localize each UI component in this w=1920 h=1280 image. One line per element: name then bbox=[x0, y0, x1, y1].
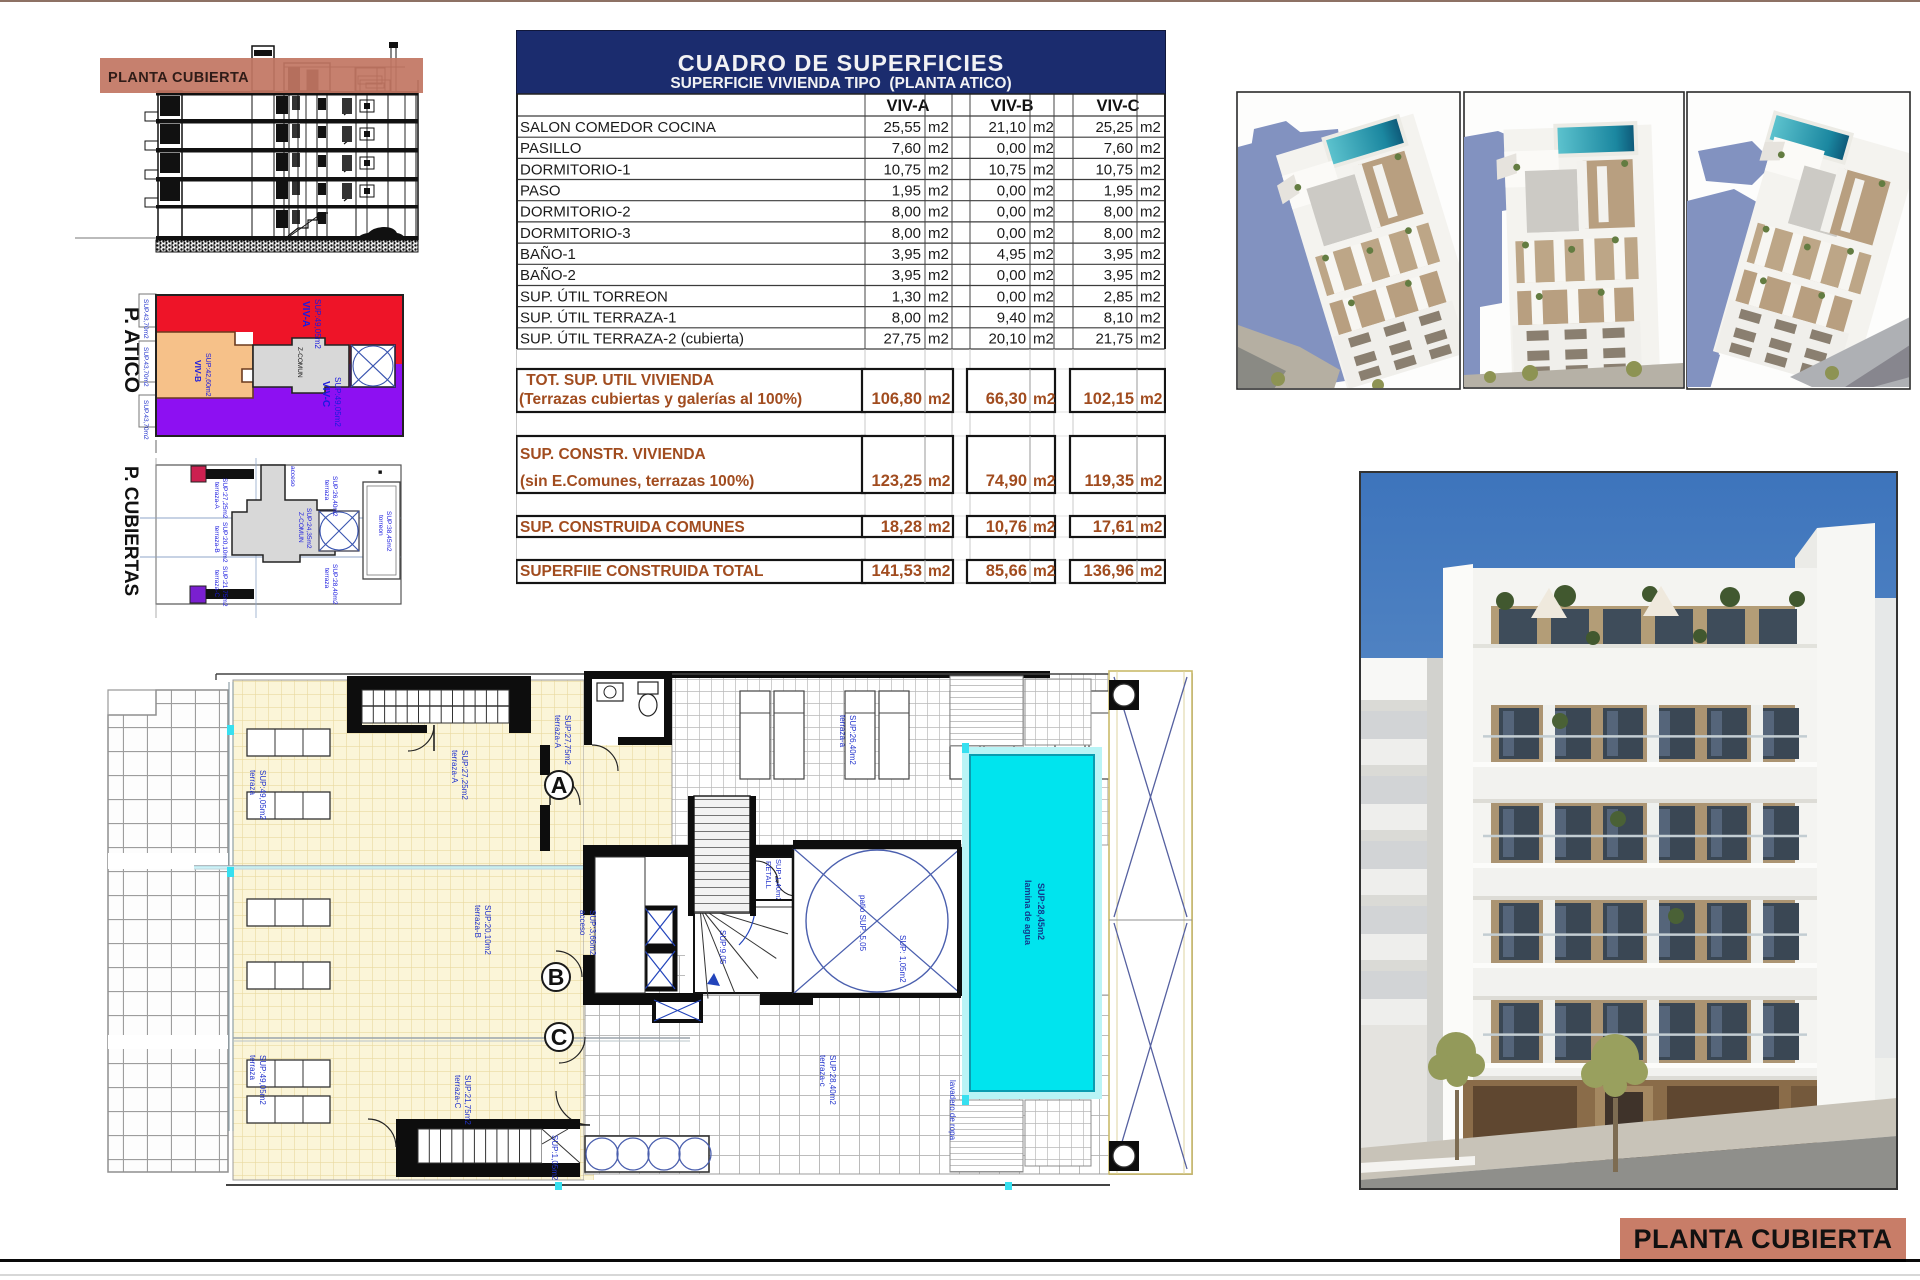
svg-text:DORMITORIO-1: DORMITORIO-1 bbox=[520, 161, 631, 178]
svg-text:VIV-A: VIV-A bbox=[300, 301, 311, 327]
svg-text:Z-COMUN: Z-COMUN bbox=[296, 347, 303, 378]
svg-text:SUP.43,70m2: SUP.43,70m2 bbox=[142, 400, 149, 440]
svg-text:PLANTA CUBIERTA: PLANTA CUBIERTA bbox=[108, 70, 249, 86]
svg-text:m2: m2 bbox=[1033, 182, 1054, 199]
svg-text:terraza-A: terraza-A bbox=[553, 715, 562, 749]
svg-text:0,00: 0,00 bbox=[997, 288, 1026, 305]
svg-text:m2: m2 bbox=[1140, 331, 1161, 348]
svg-text:terraza-B: terraza-B bbox=[473, 905, 482, 938]
svg-text:VIV-C: VIV-C bbox=[320, 381, 331, 407]
svg-text:3,95: 3,95 bbox=[892, 246, 921, 263]
svg-text:m2: m2 bbox=[1140, 225, 1161, 242]
svg-text:DORMITORIO-3: DORMITORIO-3 bbox=[520, 225, 631, 242]
svg-text:2,85: 2,85 bbox=[1104, 288, 1133, 305]
svg-text:SUP:1,40m2: SUP:1,40m2 bbox=[774, 859, 783, 902]
svg-text:m2: m2 bbox=[928, 161, 949, 178]
svg-text:SALON COMEDOR COCINA: SALON COMEDOR COCINA bbox=[520, 119, 716, 136]
svg-text:SUP:9,05: SUP:9,05 bbox=[718, 930, 727, 965]
svg-text:terraza-A: terraza-A bbox=[450, 750, 459, 784]
svg-text:m2: m2 bbox=[928, 246, 949, 263]
svg-text:m2: m2 bbox=[1033, 246, 1054, 263]
svg-text:m2: m2 bbox=[1140, 140, 1161, 157]
svg-text:PASO: PASO bbox=[520, 182, 561, 199]
svg-text:136,96: 136,96 bbox=[1084, 562, 1134, 580]
svg-text:terraza-A: terraza-A bbox=[213, 482, 220, 509]
svg-text:4,95: 4,95 bbox=[997, 246, 1026, 263]
svg-text:CUADRO DE SUPERFICIES: CUADRO DE SUPERFICIES bbox=[678, 50, 1005, 76]
svg-text:0,00: 0,00 bbox=[997, 225, 1026, 242]
svg-text:m2: m2 bbox=[1140, 473, 1162, 490]
svg-text:SUP:28,40m2: SUP:28,40m2 bbox=[331, 564, 338, 605]
svg-text:0,00: 0,00 bbox=[997, 267, 1026, 284]
svg-text:SUP:21,75m2: SUP:21,75m2 bbox=[463, 1075, 472, 1125]
svg-text:SUP:20,10m2: SUP:20,10m2 bbox=[221, 522, 228, 563]
svg-text:102,15: 102,15 bbox=[1084, 390, 1134, 408]
svg-text:m2: m2 bbox=[1140, 246, 1161, 263]
svg-text:0,00: 0,00 bbox=[997, 182, 1026, 199]
svg-text:m2: m2 bbox=[1140, 161, 1161, 178]
svg-text:m2: m2 bbox=[1033, 563, 1055, 580]
svg-text:SUP. ÚTIL TERRAZA-2 (cubierta): SUP. ÚTIL TERRAZA-2 (cubierta) bbox=[520, 331, 744, 348]
svg-text:SUP. ÚTIL TORREON: SUP. ÚTIL TORREON bbox=[520, 288, 668, 305]
svg-text:SUP:28,45m2: SUP:28,45m2 bbox=[1036, 883, 1046, 940]
svg-text:66,30: 66,30 bbox=[986, 390, 1027, 408]
svg-text:m2: m2 bbox=[928, 119, 949, 136]
svg-text:patio SUP: 5,05: patio SUP: 5,05 bbox=[858, 895, 867, 952]
svg-text:SUP:27,75m2: SUP:27,75m2 bbox=[563, 715, 572, 765]
svg-text:m2: m2 bbox=[928, 204, 949, 221]
svg-text:SUP.43,70m2: SUP.43,70m2 bbox=[142, 347, 149, 387]
svg-text:m2: m2 bbox=[1140, 563, 1162, 580]
svg-text:m2: m2 bbox=[928, 267, 949, 284]
svg-text:1,95: 1,95 bbox=[892, 182, 921, 199]
svg-text:SUP:20,10m2: SUP:20,10m2 bbox=[483, 905, 492, 955]
svg-text:m2: m2 bbox=[1140, 391, 1162, 408]
svg-text:m2: m2 bbox=[1140, 310, 1161, 327]
svg-text:8,00: 8,00 bbox=[892, 225, 921, 242]
svg-text:8,10: 8,10 bbox=[1104, 310, 1133, 327]
svg-text:m2: m2 bbox=[1140, 519, 1162, 536]
svg-text:SUP:27,25m2: SUP:27,25m2 bbox=[221, 478, 228, 519]
svg-text:141,53: 141,53 bbox=[872, 562, 922, 580]
svg-text:m2: m2 bbox=[928, 140, 949, 157]
svg-text:P. CUBIERTAS: P. CUBIERTAS bbox=[120, 466, 141, 596]
svg-text:m2: m2 bbox=[1033, 267, 1054, 284]
svg-text:m2: m2 bbox=[928, 225, 949, 242]
svg-text:m2: m2 bbox=[1140, 267, 1161, 284]
svg-text:SUP:24,35m2: SUP:24,35m2 bbox=[305, 508, 312, 549]
svg-text:27,75: 27,75 bbox=[883, 331, 921, 348]
svg-text:terraza: terraza bbox=[248, 770, 257, 795]
svg-text:m2: m2 bbox=[1033, 331, 1054, 348]
svg-text:m2: m2 bbox=[928, 473, 950, 490]
svg-text:10,75: 10,75 bbox=[883, 161, 921, 178]
svg-text:m2: m2 bbox=[1033, 519, 1055, 536]
svg-text:PASILLO: PASILLO bbox=[520, 140, 581, 157]
svg-text:m2: m2 bbox=[928, 310, 949, 327]
svg-text:SUP:26,40m2: SUP:26,40m2 bbox=[331, 476, 338, 517]
svg-text:m2: m2 bbox=[1140, 182, 1161, 199]
svg-text:VIV-C: VIV-C bbox=[1096, 97, 1139, 115]
svg-text:SUPERFICIE VIVIENDA TIPO (PLA: SUPERFICIE VIVIENDA TIPO (PLANTA ATICO) bbox=[670, 75, 1011, 92]
svg-text:terraza-C: terraza-C bbox=[453, 1075, 462, 1109]
svg-text:SUP:28,40m2: SUP:28,40m2 bbox=[828, 1055, 837, 1105]
svg-text:3,95: 3,95 bbox=[1104, 267, 1133, 284]
svg-text:A: A bbox=[551, 772, 568, 798]
svg-text:m2: m2 bbox=[928, 563, 950, 580]
svg-text:m2: m2 bbox=[1033, 140, 1054, 157]
svg-text:B: B bbox=[548, 964, 565, 990]
svg-text:74,90: 74,90 bbox=[986, 472, 1027, 490]
svg-text:SUPERFIIE CONSTRUIDA TOTAL: SUPERFIIE CONSTRUIDA TOTAL bbox=[520, 563, 763, 580]
svg-text:18,28: 18,28 bbox=[881, 518, 922, 536]
svg-text:m2: m2 bbox=[928, 391, 950, 408]
svg-text:TOT. SUP. UTIL VIVIENDA: TOT. SUP. UTIL VIVIENDA bbox=[522, 372, 714, 389]
svg-text:SUP:49,05m2: SUP:49,05m2 bbox=[258, 1055, 267, 1105]
svg-text:1,30: 1,30 bbox=[892, 288, 921, 305]
svg-text:SUP:38,45m2: SUP:38,45m2 bbox=[385, 511, 392, 552]
svg-text:terraza-B: terraza-B bbox=[213, 526, 220, 553]
svg-text:m2: m2 bbox=[1140, 204, 1161, 221]
svg-text:SUP:1,05m2: SUP:1,05m2 bbox=[550, 1135, 559, 1181]
svg-text:SUP.43,70m2: SUP.43,70m2 bbox=[142, 299, 149, 339]
svg-text:SUP:21,75m2: SUP:21,75m2 bbox=[221, 566, 228, 607]
svg-text:terraza: terraza bbox=[248, 1055, 257, 1080]
svg-text:Z-COMUN: Z-COMUN bbox=[297, 512, 304, 543]
svg-text:■: ■ bbox=[376, 470, 383, 474]
svg-text:torreon: torreon bbox=[377, 515, 384, 536]
svg-text:106,80: 106,80 bbox=[872, 390, 922, 408]
svg-text:terraza-C: terraza-C bbox=[213, 570, 220, 597]
svg-text:m2: m2 bbox=[1033, 161, 1054, 178]
svg-text:SUP. CONSTRUIDA COMUNES: SUP. CONSTRUIDA COMUNES bbox=[520, 519, 745, 536]
svg-text:21,10: 21,10 bbox=[988, 119, 1026, 136]
svg-text:m2: m2 bbox=[1033, 391, 1055, 408]
svg-text:SUP:49,05m2: SUP:49,05m2 bbox=[258, 770, 267, 820]
svg-text:20,10: 20,10 bbox=[988, 331, 1026, 348]
svg-text:SUP:3,66m2: SUP:3,66m2 bbox=[588, 910, 597, 956]
svg-text:lamina de agua: lamina de agua bbox=[1023, 880, 1033, 946]
svg-text:SUP. CONSTR. VIVIENDA: SUP. CONSTR. VIVIENDA bbox=[520, 446, 706, 463]
svg-text:m2: m2 bbox=[928, 331, 949, 348]
svg-text:m2: m2 bbox=[1033, 473, 1055, 490]
svg-text:m2: m2 bbox=[1033, 204, 1054, 221]
svg-text:10,75: 10,75 bbox=[1095, 161, 1133, 178]
svg-text:acceso: acceso bbox=[289, 466, 296, 487]
svg-text:RETALL: RETALL bbox=[764, 861, 773, 889]
svg-text:m2: m2 bbox=[1140, 119, 1161, 136]
svg-text:25,25: 25,25 bbox=[1095, 119, 1133, 136]
svg-text:0,00: 0,00 bbox=[997, 140, 1026, 157]
svg-text:terraza-a: terraza-a bbox=[838, 715, 847, 748]
svg-text:m2: m2 bbox=[1033, 288, 1054, 305]
svg-text:terraza: terraza bbox=[323, 568, 330, 589]
svg-text:SUP:26,40m2: SUP:26,40m2 bbox=[848, 715, 857, 765]
svg-text:119,35: 119,35 bbox=[1084, 472, 1134, 490]
svg-text:SUP: 1,05m2: SUP: 1,05m2 bbox=[898, 935, 907, 983]
svg-text:7,60: 7,60 bbox=[1104, 140, 1133, 157]
svg-text:m2: m2 bbox=[1033, 225, 1054, 242]
svg-text:m2: m2 bbox=[928, 182, 949, 199]
svg-text:acceso: acceso bbox=[578, 910, 587, 936]
svg-text:m2: m2 bbox=[1140, 288, 1161, 305]
svg-text:10,76: 10,76 bbox=[986, 518, 1027, 536]
svg-text:8,00: 8,00 bbox=[892, 310, 921, 327]
svg-text:SUP:49,05m2: SUP:49,05m2 bbox=[333, 377, 342, 427]
svg-text:VIV-B: VIV-B bbox=[193, 360, 203, 382]
svg-text:m2: m2 bbox=[1033, 310, 1054, 327]
svg-text:m2: m2 bbox=[1033, 119, 1054, 136]
svg-text:BAÑO-1: BAÑO-1 bbox=[520, 246, 576, 263]
svg-text:m2: m2 bbox=[928, 519, 950, 536]
svg-text:BAÑO-2: BAÑO-2 bbox=[520, 267, 576, 284]
svg-text:8,00: 8,00 bbox=[892, 204, 921, 221]
svg-text:SUP. ÚTIL TERRAZA-1: SUP. ÚTIL TERRAZA-1 bbox=[520, 310, 676, 327]
svg-text:85,66: 85,66 bbox=[986, 562, 1027, 580]
svg-text:9,40: 9,40 bbox=[997, 310, 1026, 327]
svg-text:C: C bbox=[551, 1024, 568, 1050]
svg-text:123,25: 123,25 bbox=[872, 472, 922, 490]
svg-text:SUP:42,60m2: SUP:42,60m2 bbox=[204, 353, 211, 397]
svg-text:lavadero de ropa: lavadero de ropa bbox=[948, 1080, 957, 1141]
svg-text:17,61: 17,61 bbox=[1093, 518, 1134, 536]
svg-text:terraza: terraza bbox=[323, 480, 330, 501]
svg-text:3,95: 3,95 bbox=[1104, 246, 1133, 263]
svg-text:m2: m2 bbox=[928, 288, 949, 305]
svg-text:VIV-A: VIV-A bbox=[886, 97, 929, 115]
svg-text:21,75: 21,75 bbox=[1095, 331, 1133, 348]
svg-text:7,60: 7,60 bbox=[892, 140, 921, 157]
svg-text:1,95: 1,95 bbox=[1104, 182, 1133, 199]
svg-text:(sin E.Comunes, terrazas 100%): (sin E.Comunes, terrazas 100%) bbox=[520, 473, 754, 490]
svg-text:25,55: 25,55 bbox=[883, 119, 921, 136]
svg-text:terraza-c: terraza-c bbox=[818, 1055, 827, 1087]
svg-text:SUP:49,05m2: SUP:49,05m2 bbox=[313, 299, 322, 349]
svg-text:(Terrazas cubiertas y galerías: (Terrazas cubiertas y galerías al 100%) bbox=[519, 391, 802, 408]
svg-text:10,75: 10,75 bbox=[988, 161, 1026, 178]
svg-text:DORMITORIO-2: DORMITORIO-2 bbox=[520, 204, 631, 221]
svg-text:VIV-B: VIV-B bbox=[990, 97, 1033, 115]
svg-text:8,00: 8,00 bbox=[1104, 225, 1133, 242]
svg-text:SUP:27,25m2: SUP:27,25m2 bbox=[460, 750, 469, 800]
svg-text:3,95: 3,95 bbox=[892, 267, 921, 284]
svg-text:0,00: 0,00 bbox=[997, 204, 1026, 221]
svg-text:8,00: 8,00 bbox=[1104, 204, 1133, 221]
